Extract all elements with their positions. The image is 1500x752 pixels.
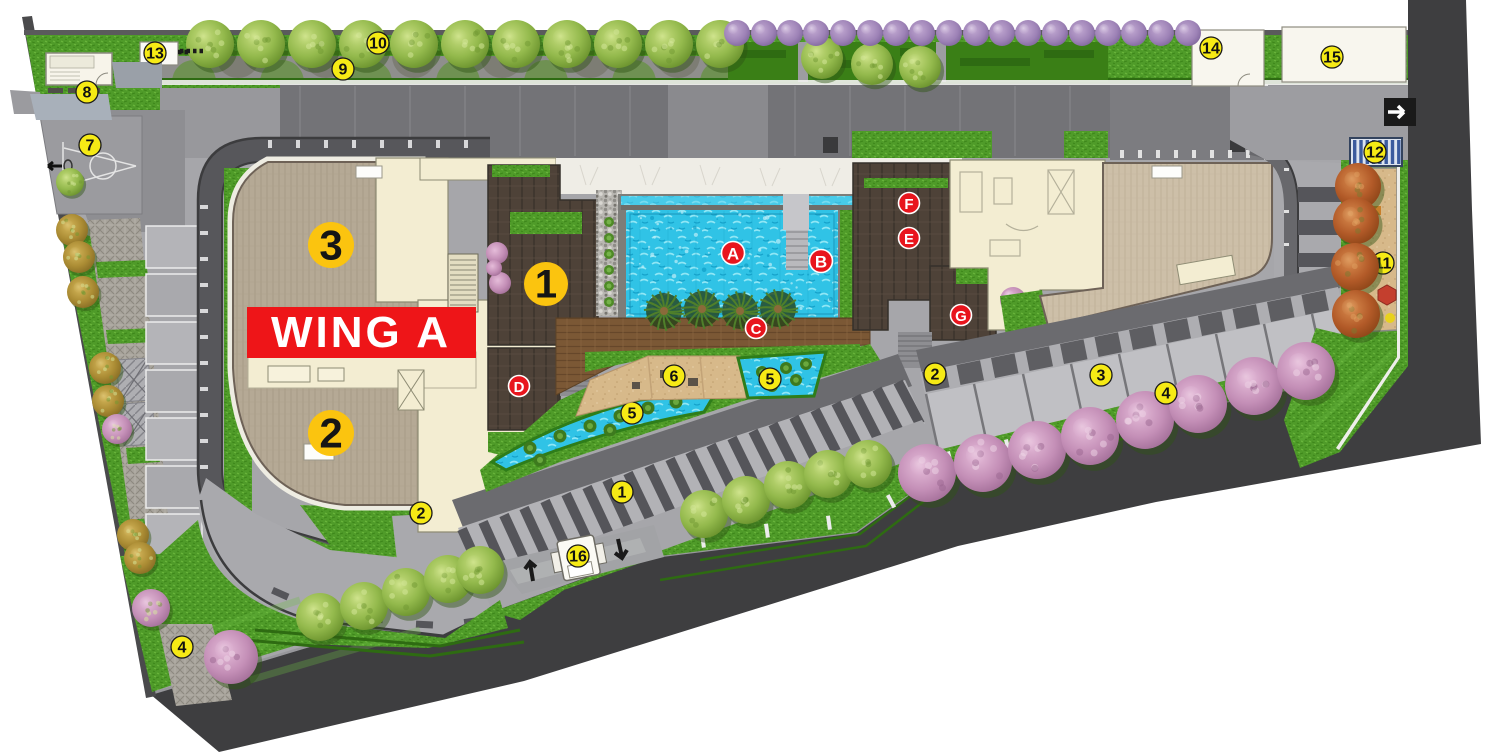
svg-text:D: D <box>514 379 525 396</box>
svg-text:12: 12 <box>1366 145 1384 162</box>
svg-text:6: 6 <box>670 369 679 386</box>
svg-text:15: 15 <box>1323 50 1341 67</box>
svg-text:10: 10 <box>369 36 387 53</box>
svg-text:4: 4 <box>1162 386 1171 403</box>
svg-text:2: 2 <box>319 409 342 456</box>
svg-text:14: 14 <box>1202 41 1220 58</box>
svg-text:C: C <box>751 321 762 338</box>
svg-text:F: F <box>904 196 913 213</box>
svg-text:E: E <box>904 231 914 248</box>
svg-text:G: G <box>955 308 967 325</box>
svg-text:9: 9 <box>339 62 348 79</box>
svg-text:1: 1 <box>535 263 557 307</box>
svg-text:5: 5 <box>628 406 637 423</box>
svg-text:2: 2 <box>931 367 940 384</box>
svg-text:B: B <box>815 252 827 271</box>
svg-text:4: 4 <box>178 640 187 657</box>
svg-text:5: 5 <box>766 372 775 389</box>
svg-text:WING A: WING A <box>271 308 451 357</box>
svg-text:8: 8 <box>83 85 92 102</box>
svg-text:3: 3 <box>319 221 342 268</box>
svg-text:A: A <box>727 244 739 263</box>
svg-text:2: 2 <box>417 506 426 523</box>
svg-text:13: 13 <box>146 46 164 63</box>
svg-text:16: 16 <box>569 549 587 566</box>
svg-text:7: 7 <box>86 138 95 155</box>
svg-text:3: 3 <box>1097 368 1106 385</box>
